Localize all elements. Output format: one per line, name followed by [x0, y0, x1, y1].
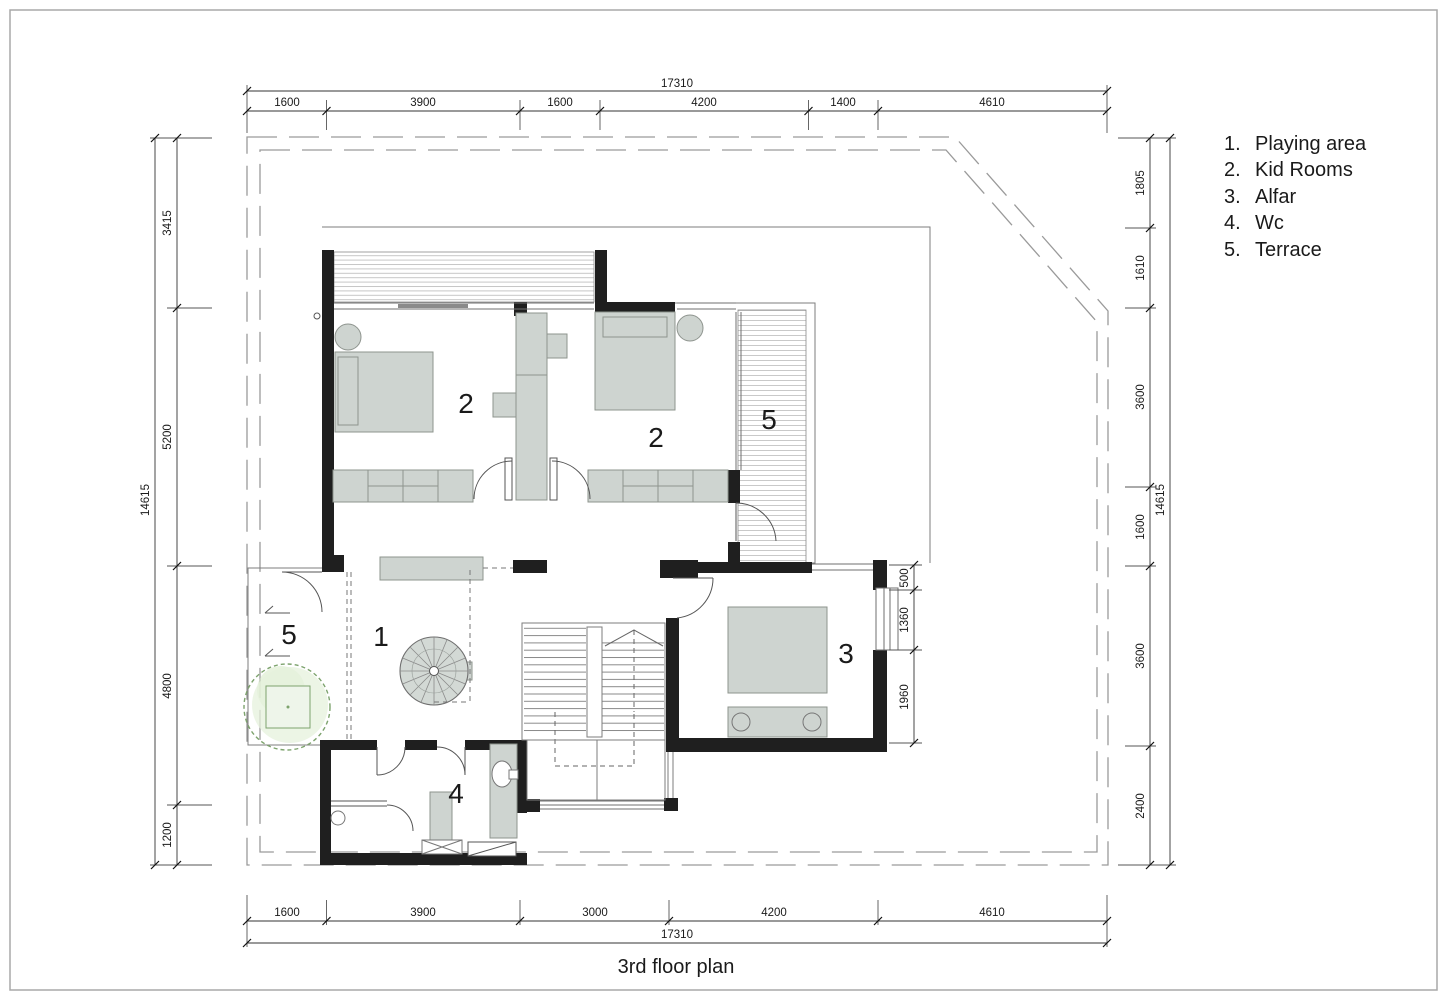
- dim-chain-right: [1118, 134, 1176, 869]
- wall-wc-west: [320, 740, 331, 865]
- bed-alfar: [728, 607, 827, 693]
- dim-bottom-seg-1: 3900: [410, 907, 436, 919]
- dim-bottom-seg-4: 4610: [979, 907, 1005, 919]
- dim-right-extensions: [1118, 138, 1176, 865]
- wall-balcony-col-right: [595, 250, 607, 304]
- dim-right-seg-1: 1610: [1135, 255, 1147, 281]
- door-wc-b: [437, 747, 465, 775]
- main-staircase: [522, 623, 665, 800]
- side-table-kidroom-left: [335, 324, 361, 350]
- legend-item-2-label: Kid Rooms: [1255, 159, 1353, 181]
- wardrobe-kidroom-right: [588, 470, 728, 502]
- dim-right-seg-4: 3600: [1135, 643, 1147, 669]
- wall-alfar-north: [678, 562, 812, 573]
- dim-bottom-overall: 17310: [661, 929, 693, 941]
- wall-alfar-west: [666, 618, 679, 740]
- dim-top-labels: 17310 1600 3900 1600 4200 1400 4610: [274, 78, 1005, 109]
- dim-top-seg-5: 4610: [979, 97, 1005, 109]
- door-wc-a: [377, 747, 405, 775]
- dim-right-seg-5: 2400: [1135, 793, 1147, 819]
- bed-kidroom-right: [595, 312, 675, 410]
- wall-alfar-east: [873, 650, 887, 750]
- side-table-kidroom-right: [677, 315, 703, 341]
- wall-terrace-stub-upper: [728, 470, 740, 503]
- window-alfar-north: [812, 564, 873, 570]
- wardrobe-kidroom-left: [333, 470, 473, 502]
- desk-kidroom-left: [493, 393, 516, 417]
- page-title: 3rd floor plan: [618, 956, 735, 978]
- dim-alfar-seg-2: 1960: [899, 684, 911, 710]
- room-label-alfar: 3: [838, 638, 854, 669]
- stair-flight-left: [524, 627, 586, 736]
- north-balcony-deck: [334, 252, 594, 302]
- dim-bottom-seg-3: 4200: [761, 907, 787, 919]
- dim-left-extensions: [150, 138, 212, 865]
- dim-bottom-seg-0: 1600: [274, 907, 300, 919]
- hall-shelf: [380, 557, 483, 580]
- dim-left-ticks: [151, 134, 181, 869]
- window-kidrooms-north: [334, 303, 594, 309]
- room-label-wc: 4: [448, 778, 464, 809]
- door-alfar: [673, 578, 713, 618]
- legend-item-1-num: 1.: [1224, 133, 1241, 155]
- legend: 1. Playing area 2. Kid Rooms 3. Alfar 4.…: [1224, 133, 1367, 261]
- vent-shaft: [468, 842, 516, 856]
- dim-left-seg-0: 3415: [162, 210, 174, 236]
- door-terrace-lower: [282, 572, 322, 612]
- room-label-kidroom-left: 2: [458, 388, 474, 419]
- legend-item-5-label: Terrace: [1255, 239, 1322, 261]
- legend-item-3-num: 3.: [1224, 186, 1241, 208]
- dim-alfar-seg-0: 500: [899, 568, 911, 587]
- spiral-stair-newel: [430, 667, 439, 676]
- room-label-playing-area: 1: [373, 621, 389, 652]
- room-label-terrace-upper: 5: [761, 404, 777, 435]
- bed-kidroom-left: [335, 352, 433, 432]
- railing-post-left: [527, 799, 540, 812]
- tree: [244, 664, 330, 750]
- dim-top-seg-1: 3900: [410, 97, 436, 109]
- room-label-kidroom-right: 2: [648, 422, 664, 453]
- dim-right-seg-3: 1600: [1135, 514, 1147, 540]
- wall-west-kidroom: [322, 302, 334, 555]
- dim-right-overall: 14615: [1155, 484, 1167, 516]
- dim-left-seg-2: 4800: [162, 673, 174, 699]
- railing-post-right: [664, 798, 678, 811]
- stair-landing: [527, 740, 665, 800]
- door-kidroom-left: [474, 458, 512, 500]
- wall-alfar-south: [666, 738, 887, 752]
- dim-bottom-seg-2: 3000: [582, 907, 608, 919]
- dim-top-extensions: [247, 85, 1107, 133]
- legend-item-1-label: Playing area: [1255, 133, 1367, 155]
- wall-hall-stub-mid: [513, 560, 547, 573]
- desk-kidroom-right: [547, 334, 567, 358]
- dim-alfar-seg-1: 1360: [899, 607, 911, 633]
- legend-item-4-label: Wc: [1255, 212, 1284, 234]
- door-wc-inner: [331, 801, 413, 831]
- washer-box: [422, 840, 462, 854]
- dim-top-seg-4: 1400: [830, 97, 856, 109]
- terrace-lower: [244, 568, 330, 750]
- room-label-terrace-lower: 5: [281, 619, 297, 650]
- wall-alfar-ne: [873, 560, 887, 590]
- wall-kidroom2-north: [595, 302, 675, 313]
- dim-chain-left: [150, 134, 212, 869]
- dim-top-seg-2: 1600: [547, 97, 573, 109]
- dim-right-labels: 1805 1610 3600 1600 3600 2400 14615: [1135, 170, 1167, 819]
- dim-top-seg-0: 1600: [274, 97, 300, 109]
- wall-hall-stub-west: [322, 555, 344, 572]
- dim-left-seg-1: 5200: [162, 424, 174, 450]
- stair-flight-right: [602, 640, 664, 736]
- floor-plan-drawing: 2 2 5 1 3 4 5 17310 1600 3900: [0, 0, 1447, 1000]
- wall-balcony-col-left: [322, 250, 334, 304]
- hinge-marker: [314, 313, 320, 319]
- spiral-staircase: [400, 637, 472, 705]
- dim-left-labels: 14615 3415 5200 4800 1200: [140, 210, 174, 848]
- dim-chain-top: [243, 85, 1111, 133]
- legend-item-3-label: Alfar: [1255, 186, 1296, 208]
- dim-left-seg-3: 1200: [162, 822, 174, 848]
- door-kidroom-right: [550, 458, 590, 500]
- dim-right-seg-2: 3600: [1135, 384, 1147, 410]
- window-kidroom2-east: [677, 303, 736, 309]
- dim-right-seg-0: 1805: [1135, 170, 1147, 196]
- shower-drain: [331, 811, 345, 825]
- wall-wc-north-b: [405, 740, 437, 750]
- dim-left-overall: 14615: [140, 484, 152, 516]
- stair-stringer: [587, 627, 602, 737]
- legend-item-4-num: 4.: [1224, 212, 1241, 234]
- legend-item-5-num: 5.: [1224, 239, 1241, 261]
- wall-wc-north-a: [327, 740, 377, 750]
- wc-counter-strip: [490, 744, 517, 838]
- floor-plan-page: 2 2 5 1 3 4 5 17310 1600 3900: [0, 0, 1447, 1000]
- dim-top-overall: 17310: [661, 78, 693, 90]
- dim-bottom-labels: 1600 3900 3000 4200 4610 17310: [274, 907, 1005, 941]
- wall-terrace-stub-lower: [728, 542, 740, 563]
- dim-top-seg-3: 4200: [691, 97, 717, 109]
- window-alfar-east: [876, 588, 898, 650]
- legend-item-2-num: 2.: [1224, 159, 1241, 181]
- bench-alfar: [728, 707, 827, 737]
